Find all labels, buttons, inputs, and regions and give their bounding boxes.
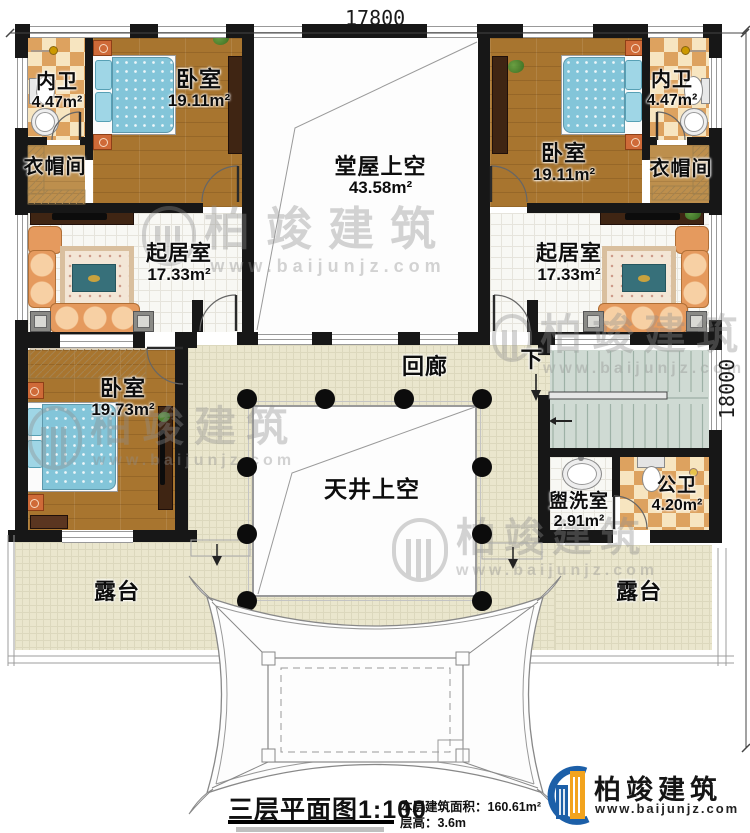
room-label-hall-void: 堂屋上空 43.58m² (328, 155, 433, 197)
wall (650, 530, 722, 543)
room-label-living-right: 起居室 17.33m² (531, 243, 607, 284)
window-icon (420, 334, 458, 345)
corridor-label: 回廊 (396, 355, 454, 379)
terrace-right-label: 露台 (610, 580, 668, 604)
wall (133, 530, 197, 542)
window-icon (158, 26, 226, 38)
window-icon (250, 26, 302, 38)
hook-icon (681, 46, 690, 55)
nightstand-icon (93, 40, 112, 56)
window-icon (711, 58, 722, 128)
floor-height-value: 3.6m (438, 816, 467, 830)
low-cabinet-icon (30, 515, 68, 529)
room-label-bedroom-top-right: 卧室 19.11m² (525, 142, 603, 184)
pillow-icon (95, 92, 112, 122)
room-label-cloak-right: 衣帽间 (646, 159, 716, 181)
floor-height-label: 层高： (400, 816, 438, 830)
room-label-living-left: 起居室 17.33m² (141, 243, 217, 284)
tv-icon (160, 430, 165, 485)
washroom-label: 盥洗室 2.91m² (541, 492, 617, 530)
wall (130, 24, 158, 38)
window-icon (427, 26, 477, 38)
side-table-icon (30, 311, 51, 332)
sink-icon (562, 458, 602, 490)
wall (478, 24, 490, 345)
wall (237, 332, 258, 345)
wall (28, 137, 47, 145)
window-icon (17, 215, 28, 320)
wall (15, 332, 60, 348)
room-label-bath-top-left: 内卫 4.47m² (30, 72, 84, 111)
window-icon (258, 334, 312, 345)
floor-height-info: 层高：3.6m (400, 812, 466, 831)
courtyard-label: 天井上空 (316, 477, 428, 502)
brand-logo-icon (542, 763, 594, 829)
dimension-top: 17800 (345, 6, 405, 30)
towel-bar-icon (31, 50, 51, 52)
stairs-down-label: 下 (518, 348, 546, 372)
wall (15, 24, 28, 58)
hook-icon (49, 46, 58, 55)
window-icon (30, 26, 130, 38)
window-icon (555, 334, 630, 345)
blanket-icon (563, 57, 625, 133)
brand-url: www.baijunjz.com (595, 801, 739, 816)
coffee-table-icon (72, 264, 116, 292)
dimension-right: 18000 (715, 359, 739, 419)
wall (612, 457, 620, 497)
pillow-icon (27, 440, 43, 468)
window-icon (648, 26, 703, 38)
floor-plan: 柏竣建筑 www.baijunjz.com 柏竣建筑 www.baijunjz.… (0, 0, 750, 833)
dresser-icon (492, 56, 508, 154)
coffee-table-icon (622, 264, 666, 292)
nightstand-icon (93, 134, 112, 150)
wall (175, 332, 188, 542)
wall (527, 300, 538, 332)
wall (538, 530, 613, 543)
sofa-icon (50, 303, 140, 333)
sofa-icon (681, 250, 709, 308)
title-underline (228, 820, 394, 824)
wall (527, 203, 709, 213)
side-table-icon (583, 311, 604, 332)
window-icon (60, 334, 133, 348)
window-icon (62, 531, 133, 543)
wall (242, 24, 254, 345)
room-label-cloak-left: 衣帽间 (20, 157, 90, 179)
side-table-icon (133, 311, 154, 332)
sofa-icon (598, 303, 688, 333)
wall (709, 430, 722, 543)
pillow-icon (625, 92, 642, 122)
stairs-floor (550, 350, 709, 448)
sink-icon (31, 108, 59, 136)
sofa-icon (28, 250, 56, 308)
window-icon (332, 334, 398, 345)
tv-icon (52, 213, 107, 220)
wall (8, 530, 62, 542)
tv-icon (625, 213, 680, 220)
wall (15, 320, 28, 542)
window-icon (523, 26, 593, 38)
sink-icon (680, 108, 708, 136)
wall (398, 332, 420, 345)
wall (687, 137, 709, 145)
room-label-bath-top-right: 内卫 4.47m² (645, 70, 699, 109)
wall (192, 300, 203, 332)
room-label-bedroom-top-left: 卧室 19.11m² (160, 68, 238, 110)
pillow-icon (95, 60, 112, 90)
wall (15, 203, 203, 213)
pillow-icon (27, 408, 43, 436)
terrace-left-label: 露台 (88, 580, 146, 604)
side-table-icon (686, 311, 707, 332)
pillow-icon (625, 60, 642, 90)
wall (709, 24, 722, 58)
wall (312, 332, 332, 345)
window-icon (17, 58, 28, 128)
title-underline-shadow (236, 827, 384, 832)
window-icon (711, 215, 722, 320)
wall (650, 137, 657, 145)
wall (593, 24, 648, 38)
wall (538, 448, 722, 457)
wall (80, 137, 93, 145)
wall (458, 332, 490, 345)
floor-area-value: 160.61m² (488, 800, 542, 814)
public-bath-label: 公卫 4.20m² (648, 476, 706, 514)
room-label-bedroom-bottom-left: 卧室 19.73m² (84, 377, 162, 419)
